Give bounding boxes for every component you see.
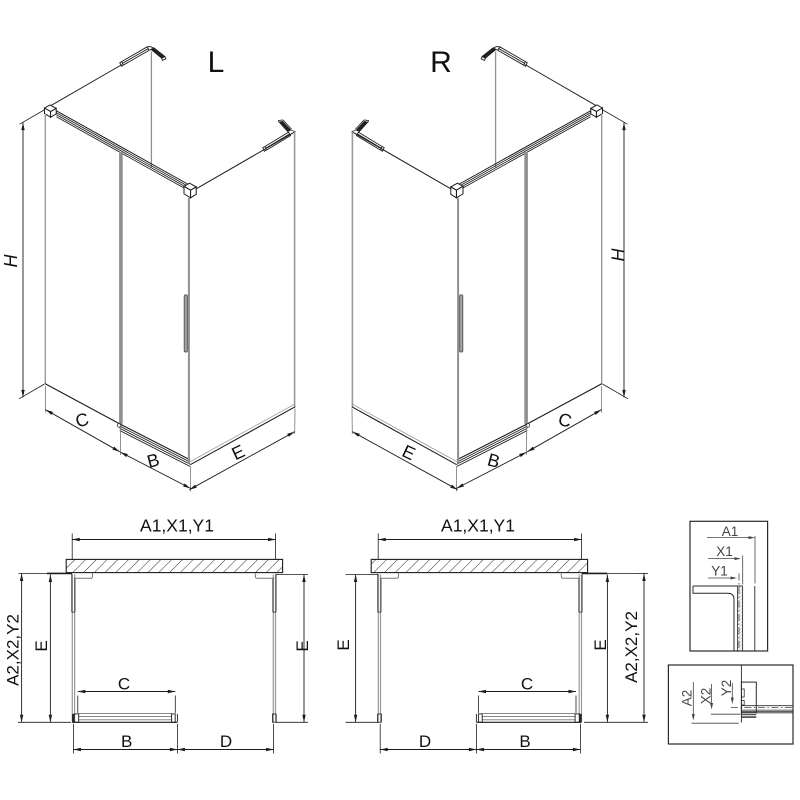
svg-text:A2: A2 <box>680 690 695 707</box>
svg-text:R: R <box>430 46 452 79</box>
svg-text:E: E <box>293 640 312 651</box>
svg-text:H: H <box>609 248 629 262</box>
svg-text:E: E <box>32 640 51 651</box>
svg-text:X1: X1 <box>716 544 733 559</box>
svg-text:A1,X1,Y1: A1,X1,Y1 <box>140 516 214 536</box>
svg-text:E: E <box>591 639 610 650</box>
svg-text:D: D <box>419 732 431 751</box>
svg-text:L: L <box>208 46 225 79</box>
svg-text:B: B <box>121 732 132 751</box>
svg-text:B: B <box>519 732 530 751</box>
svg-text:D: D <box>220 732 232 751</box>
svg-text:C: C <box>521 675 533 694</box>
svg-text:E: E <box>334 639 353 650</box>
svg-text:C: C <box>118 675 130 694</box>
svg-text:A1,X1,Y1: A1,X1,Y1 <box>441 516 515 536</box>
svg-text:H: H <box>1 254 21 268</box>
svg-text:A2,X2,Y2: A2,X2,Y2 <box>4 614 23 686</box>
svg-text:Y2: Y2 <box>719 680 734 697</box>
svg-text:A2,X2,Y2: A2,X2,Y2 <box>622 611 641 683</box>
svg-text:Y1: Y1 <box>711 564 728 579</box>
svg-text:A1: A1 <box>722 524 739 539</box>
